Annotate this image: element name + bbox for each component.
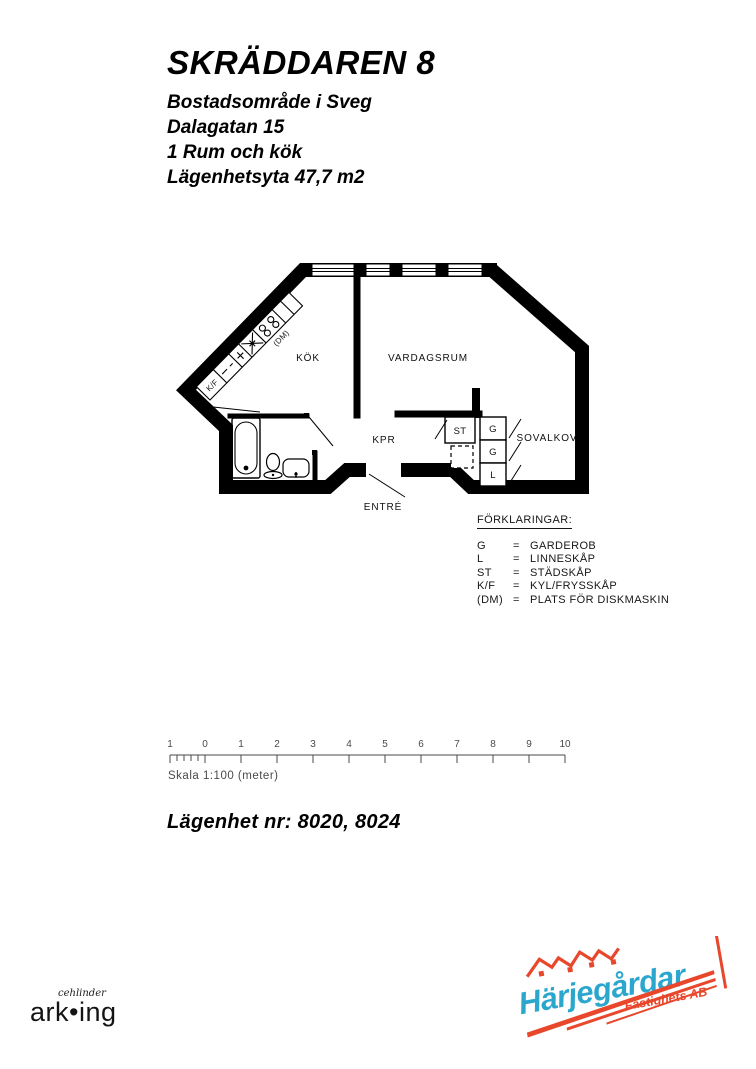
legend-equals: = <box>513 594 530 607</box>
legend-label: KYL/FRYSSKÅP <box>530 580 617 593</box>
scale-tick-label: 8 <box>490 739 496 750</box>
apartment-numbers: Lägenhet nr: 8020, 8024 <box>167 811 401 834</box>
arking-name-text: ark•ing <box>30 999 150 1025</box>
window-icon <box>402 264 436 276</box>
legend-item-kylfrys: K/F = KYL/FRYSSKÅP <box>477 580 669 593</box>
alcove-wall-stub <box>472 388 480 418</box>
legend-item-diskmaskin: (DM) = PLATS FÖR DISKMASKIN <box>477 594 669 607</box>
legend-title: FÖRKLARINGAR: <box>477 514 572 529</box>
subtitle-street: Dalagatan 15 <box>167 115 372 140</box>
scale-tick-label: 0 <box>202 739 208 750</box>
bathtub-icon <box>232 418 260 478</box>
legend-label: PLATS FÖR DISKMASKIN <box>530 594 669 607</box>
window-icon <box>312 264 354 276</box>
legend-abbr: ST <box>477 567 513 580</box>
entrance-leader-line <box>369 474 405 497</box>
scale-tick-label: 4 <box>346 739 352 750</box>
legend-abbr: L <box>477 553 513 566</box>
legend-item-stadskap: ST = STÄDSKÅP <box>477 567 669 580</box>
room-label-sovalkov: SOVALKOV <box>517 433 578 444</box>
scale-tick-label: 1 <box>167 739 173 750</box>
harjegardar-logo: Härjegårdar Fastighets AB <box>520 936 752 1041</box>
room-label-kpr: KPR <box>372 435 395 446</box>
closet-g2-label: G <box>489 447 497 458</box>
scale-tick-label: 9 <box>526 739 532 750</box>
door-jamb <box>312 450 317 455</box>
room-label-kok: KÖK <box>296 352 320 364</box>
washbasin-icon <box>283 459 309 478</box>
header-subtitle: Bostadsområde i Sveg Dalagatan 15 1 Rum … <box>167 90 372 190</box>
subtitle-area: Bostadsområde i Sveg <box>167 90 372 115</box>
room-label-entre: ENTRÉ <box>364 500 402 513</box>
legend: FÖRKLARINGAR: G = GARDEROB L = LINNESKÅP… <box>477 514 669 607</box>
legend-abbr: (DM) <box>477 594 513 607</box>
subtitle-rooms: 1 Rum och kök <box>167 140 372 165</box>
scale-bar: 1 0 1 2 3 4 5 6 7 8 9 10 Skala 1:100 (me… <box>166 733 576 785</box>
arking-logo: cehlinder ark•ing <box>30 988 150 1025</box>
closet-g1-label: G <box>489 424 497 435</box>
bathroom-door-swing <box>309 417 333 446</box>
floor-plan: K/F (DM) <box>170 250 600 520</box>
legend-item-garderob: G = GARDEROB <box>477 540 669 553</box>
window-icon <box>366 264 390 276</box>
door-jamb <box>304 413 309 418</box>
outer-walls <box>186 270 582 487</box>
scale-tick-label: 6 <box>418 739 424 750</box>
scale-tick-label: 3 <box>310 739 316 750</box>
legend-label: STÄDSKÅP <box>530 567 592 580</box>
legend-label: LINNESKÅP <box>530 553 595 566</box>
kitchen-counter: K/F (DM) <box>196 293 311 409</box>
legend-item-linneskap: L = LINNESKÅP <box>477 553 669 566</box>
legend-abbr: K/F <box>477 580 513 593</box>
page-title: SKRÄDDAREN 8 <box>167 44 435 82</box>
scale-tick-label: 2 <box>274 739 280 750</box>
scale-tick-label: 1 <box>238 739 244 750</box>
floorplan-sheet: SKRÄDDAREN 8 Bostadsområde i Sveg Dalaga… <box>0 0 756 1069</box>
scale-caption: Skala 1:100 (meter) <box>168 770 279 782</box>
closet-st-label: ST <box>454 426 467 437</box>
window-icon <box>448 264 482 276</box>
legend-equals: = <box>513 567 530 580</box>
legend-equals: = <box>513 553 530 566</box>
scale-tick-label: 5 <box>382 739 388 750</box>
legend-equals: = <box>513 580 530 593</box>
subtitle-size: Lägenhetsyta 47,7 m2 <box>167 165 372 190</box>
appliance-space-dashed <box>451 446 473 468</box>
legend-equals: = <box>513 540 530 553</box>
room-label-vardagsrum: VARDAGSRUM <box>388 353 468 364</box>
closet-l-label: L <box>490 470 496 481</box>
legend-abbr: G <box>477 540 513 553</box>
toilet-icon <box>264 454 282 479</box>
scale-tick-label: 10 <box>559 739 571 750</box>
scale-tick-label: 7 <box>454 739 460 750</box>
legend-label: GARDEROB <box>530 540 596 553</box>
